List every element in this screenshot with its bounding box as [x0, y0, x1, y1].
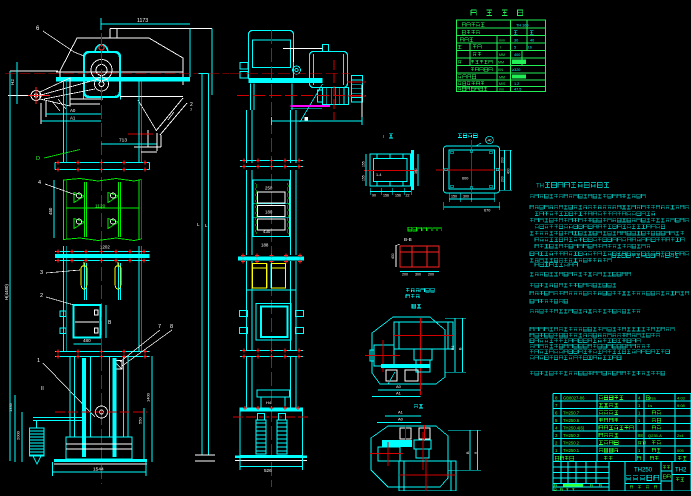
svg-text:TH: TH	[536, 184, 544, 190]
svg-text:H2: H2	[10, 79, 15, 85]
svg-text:≥320: ≥320	[512, 68, 520, 72]
svg-text:GB8027-86: GB8027-86	[563, 396, 585, 401]
svg-text:480: 480	[83, 338, 91, 343]
svg-text:2: 2	[40, 293, 43, 299]
svg-text:200: 200	[402, 273, 408, 277]
svg-text:360: 360	[414, 168, 418, 174]
svg-text:156: 156	[383, 194, 389, 198]
svg-text:H4: H4	[266, 400, 272, 405]
svg-text:1-4: 1-4	[376, 173, 382, 177]
svg-text:155: 155	[362, 175, 366, 181]
svg-text:90: 90	[372, 194, 376, 198]
svg-text:TH250.2: TH250.2	[563, 441, 580, 446]
svg-text:155: 155	[362, 161, 366, 167]
svg-text:A0: A0	[396, 384, 402, 389]
svg-text:1.2: 1.2	[514, 82, 519, 86]
svg-text:9.08: 9.08	[677, 403, 686, 408]
svg-text:005: 005	[677, 448, 684, 453]
svg-text:1120: 1120	[95, 204, 106, 210]
svg-text:156: 156	[395, 194, 401, 198]
svg-text:MM: MM	[499, 76, 505, 80]
svg-text:2x4: 2x4	[677, 433, 684, 438]
svg-text:30: 30	[514, 39, 518, 43]
svg-text:TH250.7: TH250.7	[563, 411, 580, 416]
svg-text:4: 4	[38, 180, 41, 186]
svg-text:1400: 1400	[146, 392, 151, 402]
svg-text:22: 22	[406, 194, 410, 198]
svg-text:r/m: r/m	[499, 88, 504, 92]
svg-text:TH2: TH2	[675, 468, 687, 474]
svg-text:300: 300	[415, 273, 421, 277]
svg-text:300: 300	[463, 195, 469, 199]
svg-text:M/S: M/S	[499, 82, 506, 86]
svg-text:D: D	[36, 156, 40, 162]
svg-text:200: 200	[501, 176, 505, 182]
svg-text:430: 430	[263, 229, 271, 234]
svg-text:MM: MM	[499, 53, 505, 57]
svg-text:7: 7	[158, 324, 161, 330]
svg-text:H(4480): H(4480)	[4, 284, 9, 300]
svg-text:550: 550	[138, 417, 143, 424]
svg-text:450: 450	[48, 207, 53, 215]
svg-text:A1: A1	[70, 116, 76, 121]
svg-text:1202: 1202	[100, 245, 110, 250]
svg-text:MM: MM	[498, 61, 504, 65]
svg-text:TH250.1: TH250.1	[563, 448, 580, 453]
svg-text:B-B: B-B	[404, 237, 412, 242]
svg-text:150: 150	[451, 195, 457, 199]
svg-text:B1: B1	[451, 345, 455, 350]
svg-text:1544: 1544	[93, 467, 104, 473]
svg-text:t.b: t.b	[528, 46, 532, 50]
svg-text:A1: A1	[398, 410, 404, 415]
svg-text:TH250.4(6): TH250.4(6)	[563, 426, 585, 431]
svg-text:250: 250	[265, 186, 273, 191]
svg-text:TH250: TH250	[634, 468, 653, 474]
svg-text:600: 600	[462, 177, 468, 181]
svg-text:A0: A0	[70, 108, 76, 113]
svg-text:mm: mm	[499, 39, 505, 43]
svg-text:KN: KN	[498, 68, 503, 72]
svg-text:Ls: Ls	[648, 403, 652, 408]
svg-text:1-40: 1-40	[485, 139, 492, 143]
svg-text:TH250.6: TH250.6	[563, 418, 580, 423]
svg-text:40: 40	[530, 39, 534, 43]
svg-text:8: 8	[170, 324, 173, 330]
svg-text:4.03: 4.03	[677, 396, 686, 401]
svg-text:180: 180	[265, 210, 273, 215]
svg-text:47.5: 47.5	[514, 88, 521, 92]
svg-text:670: 670	[484, 209, 490, 213]
svg-text:88: 88	[638, 433, 643, 438]
svg-text:2000: 2000	[16, 430, 21, 440]
svg-text:713: 713	[119, 138, 127, 144]
svg-text:400: 400	[514, 53, 520, 57]
svg-text:5: 5	[514, 46, 516, 50]
svg-text:TH250.3: TH250.3	[563, 433, 580, 438]
svg-text:1: 1	[37, 358, 40, 364]
svg-text:3: 3	[40, 270, 43, 276]
svg-text:200: 200	[501, 157, 505, 163]
svg-text:Q235-A: Q235-A	[648, 433, 662, 438]
svg-text:430: 430	[391, 253, 395, 259]
svg-text:200: 200	[428, 273, 434, 277]
svg-text:1335: 1335	[8, 402, 13, 412]
svg-text:430: 430	[507, 168, 511, 174]
svg-text:A1: A1	[396, 391, 402, 396]
svg-text:I: I	[383, 134, 384, 140]
svg-text:526: 526	[264, 468, 272, 473]
svg-text:188: 188	[261, 243, 269, 248]
svg-text:TH 160: TH 160	[516, 24, 528, 28]
svg-text:A0: A0	[398, 417, 404, 422]
svg-text:1173: 1173	[137, 18, 148, 24]
svg-text:II: II	[41, 386, 44, 392]
